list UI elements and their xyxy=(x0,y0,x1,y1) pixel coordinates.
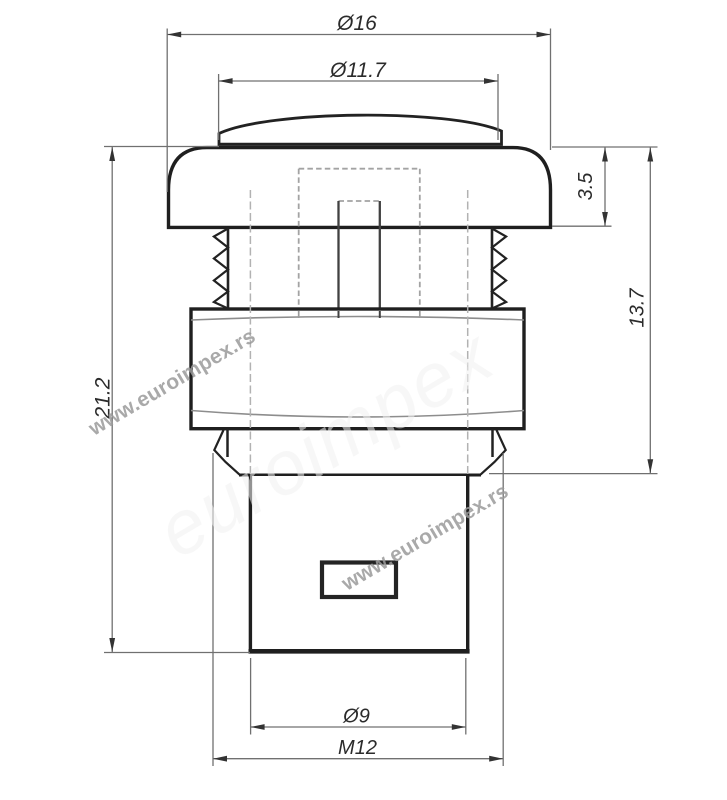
svg-text:Ø16: Ø16 xyxy=(336,12,377,35)
svg-text:13.7: 13.7 xyxy=(627,288,649,328)
svg-text:3.5: 3.5 xyxy=(575,172,597,201)
svg-text:Ø9: Ø9 xyxy=(342,706,370,728)
svg-text:M12: M12 xyxy=(338,737,377,759)
svg-text:Ø11.7: Ø11.7 xyxy=(329,59,387,82)
